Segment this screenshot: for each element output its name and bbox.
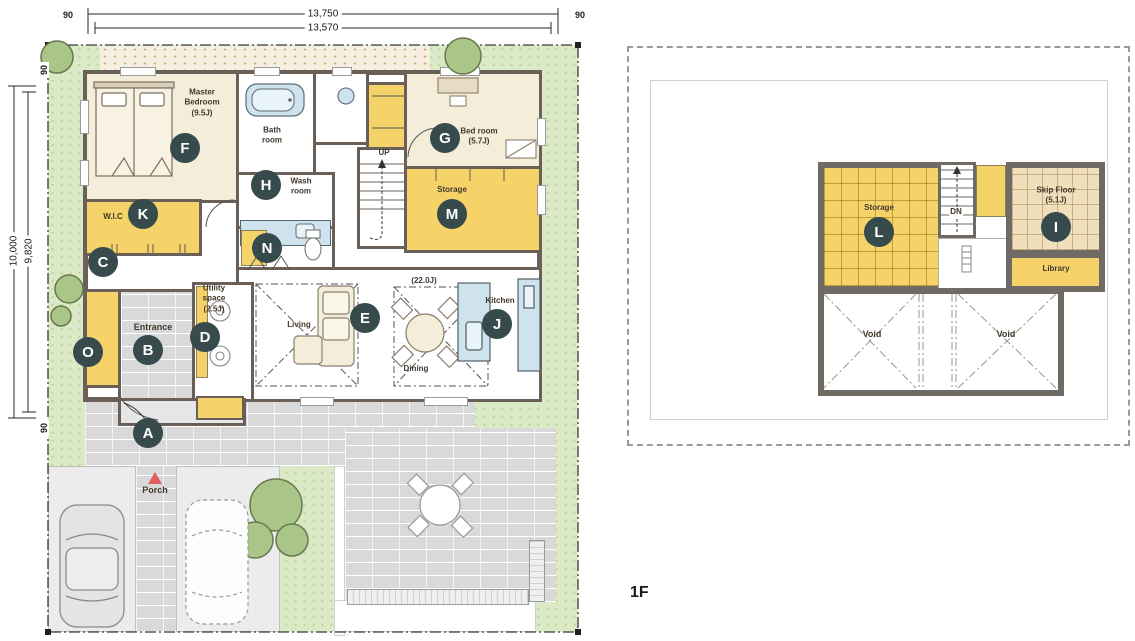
- dim-side-inner: 9,820: [24, 235, 35, 266]
- wood-deck: [347, 589, 529, 605]
- marker-g[interactable]: G: [430, 123, 460, 153]
- marker-d[interactable]: D: [190, 322, 220, 352]
- dim-90-side-bottom: 90: [39, 420, 49, 436]
- room-label-storage-1f: Storage: [437, 185, 467, 195]
- floor-plan-canvas: 13,750 13,570 90 90 10,000 9,820 90 90 M…: [0, 0, 1135, 641]
- room-label-washroom: Wash room: [290, 177, 311, 198]
- room-label-master-bedroom: Master Bedroom (9.5J): [184, 87, 219, 118]
- marker-e[interactable]: E: [350, 303, 380, 333]
- dim-top-inner: 13,570: [305, 23, 342, 34]
- room-label-utility: Utility space (2.5J): [203, 283, 226, 314]
- room-label-wic: W.I.C: [103, 212, 123, 222]
- room-label-entrance: Entrance: [134, 322, 173, 334]
- dim-90-side-top: 90: [39, 62, 49, 78]
- wood-deck-side: [529, 540, 545, 602]
- void-left-label: Void: [863, 329, 882, 341]
- room-label-living: Living: [287, 320, 311, 330]
- window: [120, 67, 156, 76]
- window: [80, 100, 89, 134]
- marker-a[interactable]: A: [133, 418, 163, 448]
- marker-i[interactable]: I: [1041, 212, 1071, 242]
- stairs-2f: [938, 162, 976, 238]
- marker-h[interactable]: H: [251, 170, 281, 200]
- stairs-up-label: UP: [378, 148, 389, 158]
- dim-side-outer: 10,000: [9, 233, 20, 270]
- void-right-label: Void: [997, 329, 1016, 341]
- entrance-closet: [196, 396, 244, 420]
- marker-b[interactable]: B: [133, 335, 163, 365]
- parking-spot-right: [176, 466, 280, 632]
- room-storage-1f: [404, 166, 542, 253]
- marker-j[interactable]: J: [482, 309, 512, 339]
- porch-label: Porch: [142, 485, 168, 497]
- window: [254, 67, 280, 76]
- room-label-dining: Dining: [404, 364, 429, 374]
- marker-f[interactable]: F: [170, 133, 200, 163]
- room-bath: [236, 71, 316, 175]
- window: [440, 67, 480, 76]
- marker-c[interactable]: C: [88, 247, 118, 277]
- room-label-storage-2f: Storage: [864, 203, 894, 213]
- room-label-bedroom-g: Bed room (5.7J): [460, 127, 497, 148]
- room-toilet-top: [313, 71, 369, 145]
- room-label-library: Library: [1042, 264, 1069, 274]
- window: [300, 397, 334, 406]
- window: [424, 397, 468, 406]
- landing-2f: [976, 165, 1006, 217]
- window: [537, 185, 546, 215]
- marker-m[interactable]: M: [437, 199, 467, 229]
- room-bedroom-g: [404, 71, 542, 170]
- stairs-down-label: DN: [949, 207, 963, 217]
- window: [80, 160, 89, 186]
- terrace-paving: [345, 428, 556, 602]
- stairwell-open: [938, 238, 1008, 292]
- window: [332, 67, 352, 76]
- dim-top-outer: 13,750: [305, 9, 342, 20]
- marker-l[interactable]: L: [864, 217, 894, 247]
- dim-90-top-right: 90: [572, 10, 588, 20]
- room-label-skip-floor: Skip Floor (5.1J): [1036, 186, 1075, 207]
- marker-k[interactable]: K: [128, 199, 158, 229]
- parking-spot-left: [48, 466, 136, 632]
- room-label-bath: Bath room: [262, 126, 282, 147]
- stairs-1f: [357, 147, 407, 249]
- window: [537, 118, 546, 146]
- ldk-size-label: (22.0J): [411, 276, 436, 286]
- room-label-kitchen: Kitchen: [485, 296, 514, 306]
- marker-o[interactable]: O: [73, 337, 103, 367]
- dim-90-top-left: 90: [60, 10, 76, 20]
- floor-label-1f: 1F: [630, 584, 649, 602]
- marker-n[interactable]: N: [252, 233, 282, 263]
- void-block: [818, 288, 1064, 396]
